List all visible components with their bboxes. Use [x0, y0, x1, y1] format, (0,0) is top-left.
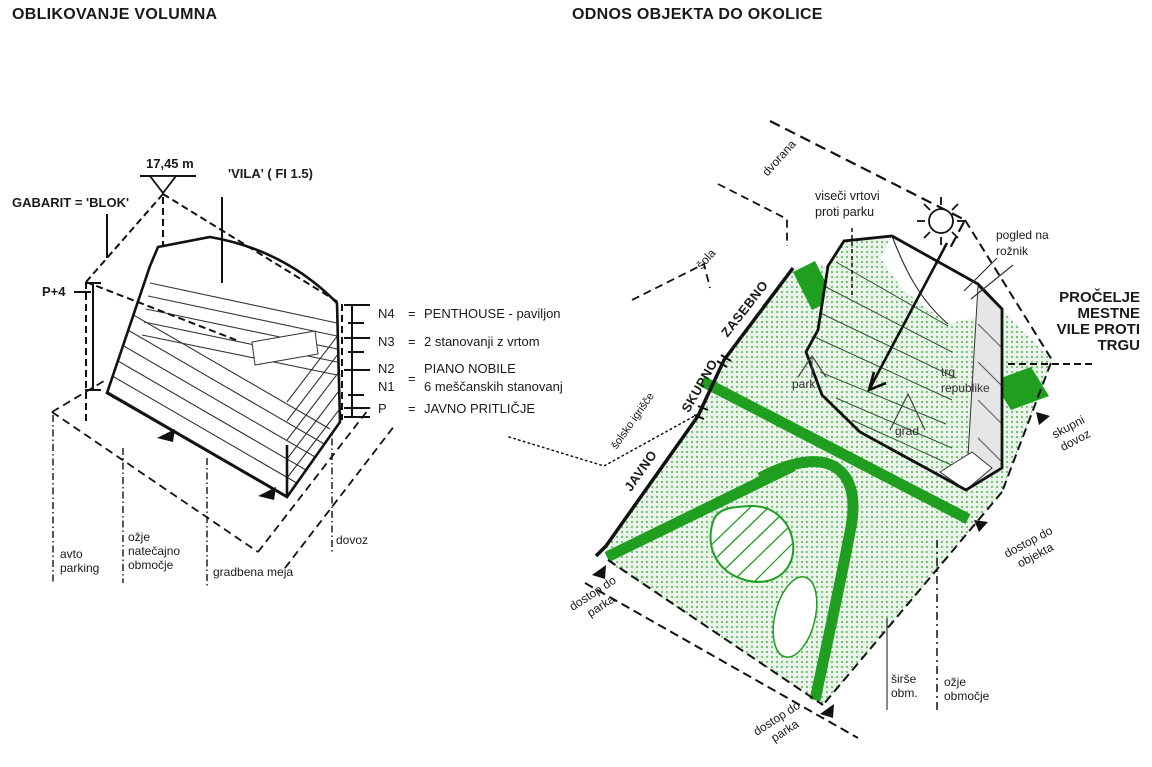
floors-label: P+4: [42, 285, 66, 299]
legend-row-n1: N16 meščanskih stanovanj: [378, 379, 563, 394]
legend-row-n4: N4=PENTHOUSE - paviljon: [378, 306, 561, 321]
view-roznik-label: pogled na rožnik: [996, 227, 1049, 259]
ozje-natecajno-label: ožje natečajno območje: [128, 530, 180, 572]
park-access-marker-2: [820, 704, 834, 718]
floor-dimension-line: [344, 305, 370, 417]
legend-row-n3: N3=2 stanovanji z vrtom: [378, 334, 540, 349]
elevation-mark: [140, 176, 196, 193]
grad-label: grad: [895, 424, 919, 438]
site-plan: [509, 121, 1092, 738]
entry-arrow-1: [157, 429, 175, 442]
shared-driveway-marker: [1036, 412, 1050, 425]
height-bracket: [74, 283, 101, 390]
park-label: park: [792, 377, 815, 391]
legend-row-p: P=JAVNO PRITLIČJE: [378, 401, 535, 416]
entry-arrow-2: [258, 487, 276, 500]
hanging-gardens-label: viseči vrtovi proti parku: [815, 188, 880, 220]
sun-icon: [917, 197, 965, 245]
trg-republike-label: trg republike: [941, 364, 990, 396]
height-label: 17,45 m: [146, 157, 194, 171]
vila-label: 'VILA' ( FI 1.5): [228, 167, 313, 181]
avto-parking-label: avto parking: [60, 547, 99, 575]
left-panel-title: OBLIKOVANJE VOLUMNA: [12, 8, 217, 22]
sirse-obmocje-label: širše obm.: [891, 672, 918, 700]
procelje-label: PROČELJE MESTNE VILE PROTI TRGU: [1014, 290, 1140, 354]
gradbena-meja-label: gradbena meja: [213, 565, 293, 579]
volume-drawing: [52, 176, 395, 588]
building-access-marker: [974, 520, 988, 532]
ozje-obmocje-label: ožje območje: [944, 675, 989, 703]
legend-row-n2: N2PIANO NOBILE: [378, 361, 516, 376]
dovoz-label: dovoz: [336, 533, 368, 547]
architecture-diagram-page: OBLIKOVANJE VOLUMNA ODNOS OBJEKTA DO OKO…: [0, 0, 1152, 767]
gabarit-label: GABARIT = 'BLOK': [12, 196, 129, 210]
right-panel-title: ODNOS OBJEKTA DO OKOLICE: [572, 8, 823, 22]
